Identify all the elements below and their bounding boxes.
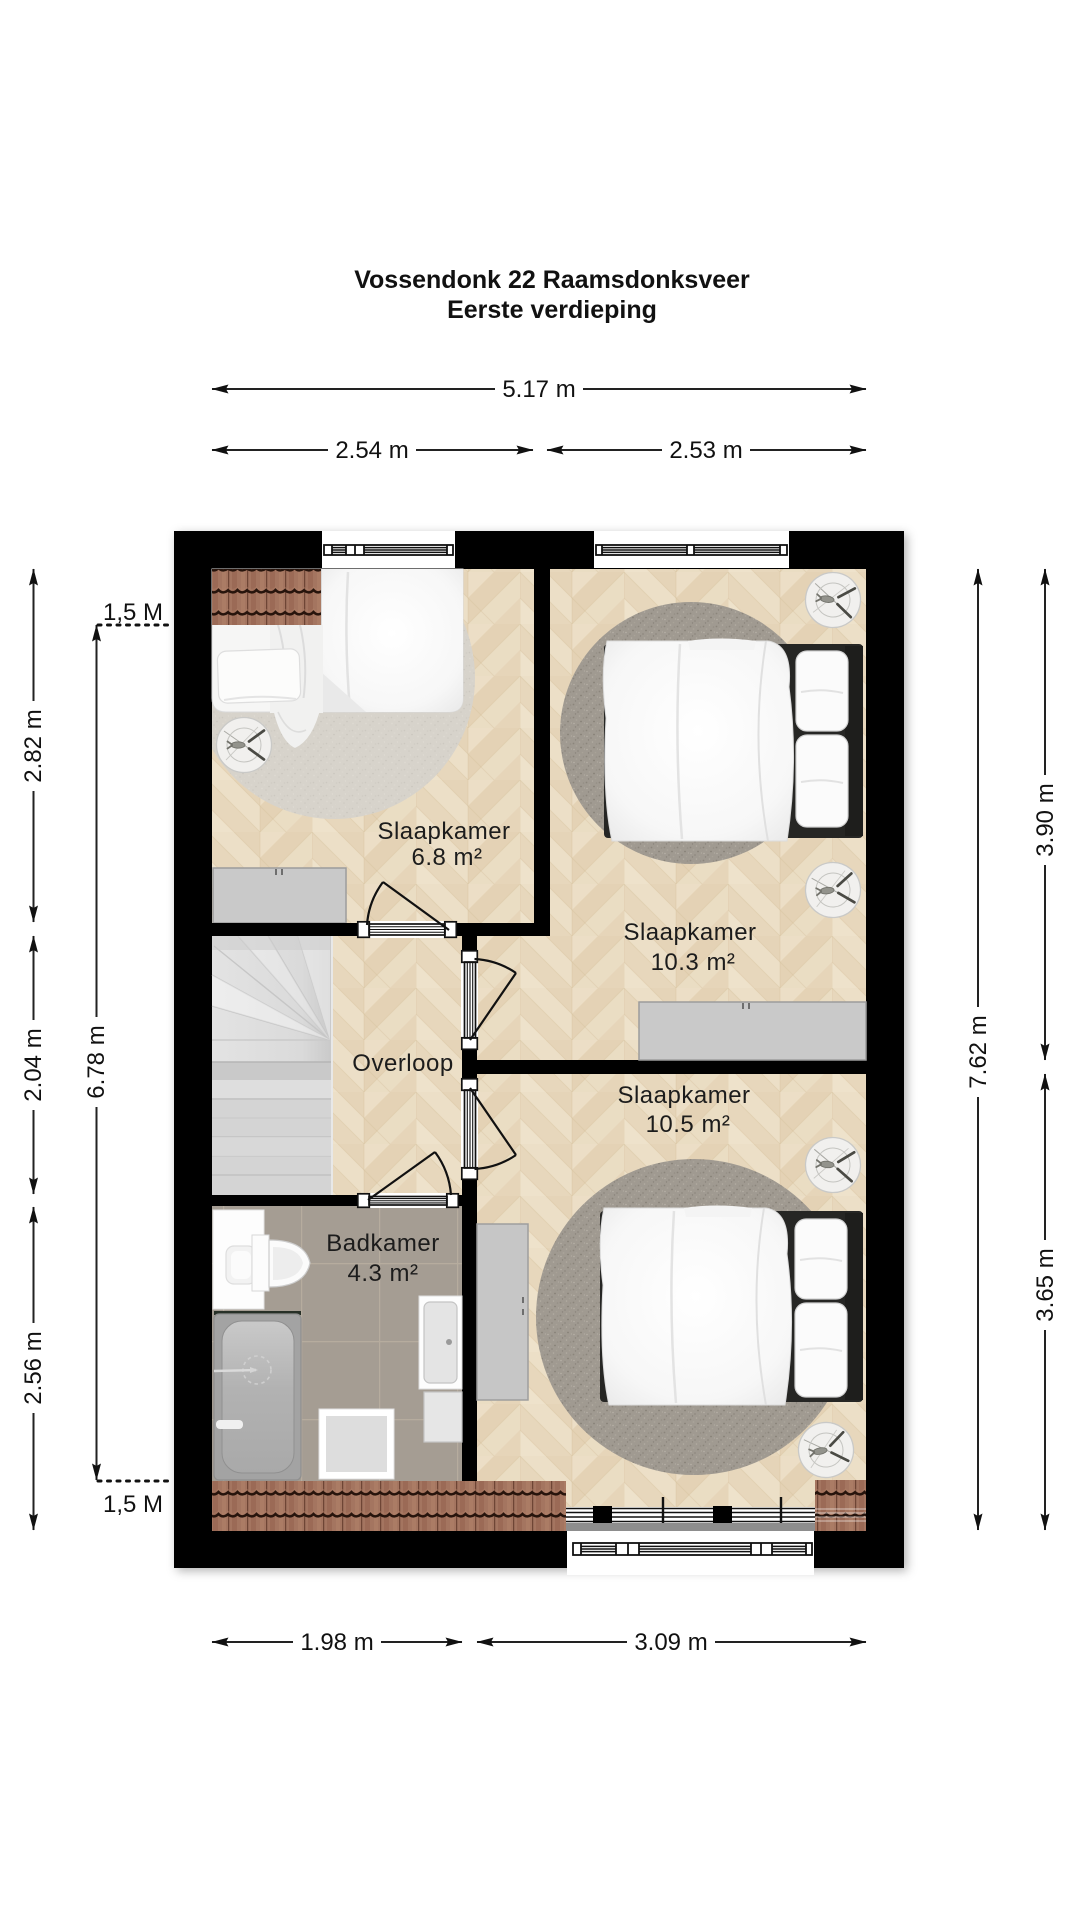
- svg-text:6.78 m: 6.78 m: [83, 1025, 110, 1098]
- svg-text:Vossendonk 22 Raamsdonksveer: Vossendonk 22 Raamsdonksveer: [354, 266, 750, 294]
- svg-text:Badkamer: Badkamer: [326, 1230, 439, 1257]
- svg-text:4.3 m²: 4.3 m²: [347, 1260, 418, 1287]
- svg-text:2.04 m: 2.04 m: [20, 1028, 47, 1101]
- svg-text:2.82 m: 2.82 m: [20, 709, 47, 782]
- svg-text:10.5 m²: 10.5 m²: [646, 1111, 731, 1138]
- svg-text:6.8 m²: 6.8 m²: [411, 844, 482, 871]
- svg-text:1.98 m: 1.98 m: [300, 1629, 373, 1656]
- svg-text:2.53 m: 2.53 m: [669, 437, 742, 464]
- svg-text:5.17 m: 5.17 m: [502, 376, 575, 403]
- svg-text:Eerste verdieping: Eerste verdieping: [447, 296, 657, 324]
- svg-text:3.65 m: 3.65 m: [1032, 1248, 1059, 1321]
- svg-text:1,5 M: 1,5 M: [103, 1491, 163, 1518]
- svg-text:10.3 m²: 10.3 m²: [651, 949, 736, 976]
- svg-text:Slaapkamer: Slaapkamer: [623, 919, 756, 946]
- svg-text:3.09 m: 3.09 m: [634, 1629, 707, 1656]
- svg-text:Overloop: Overloop: [352, 1050, 453, 1077]
- svg-text:2.56 m: 2.56 m: [20, 1331, 47, 1404]
- svg-text:1,5 M: 1,5 M: [103, 599, 163, 626]
- svg-text:3.90 m: 3.90 m: [1032, 783, 1059, 856]
- svg-text:Slaapkamer: Slaapkamer: [617, 1082, 750, 1109]
- svg-text:Slaapkamer: Slaapkamer: [377, 818, 510, 845]
- svg-text:7.62 m: 7.62 m: [965, 1015, 992, 1088]
- svg-text:2.54 m: 2.54 m: [335, 437, 408, 464]
